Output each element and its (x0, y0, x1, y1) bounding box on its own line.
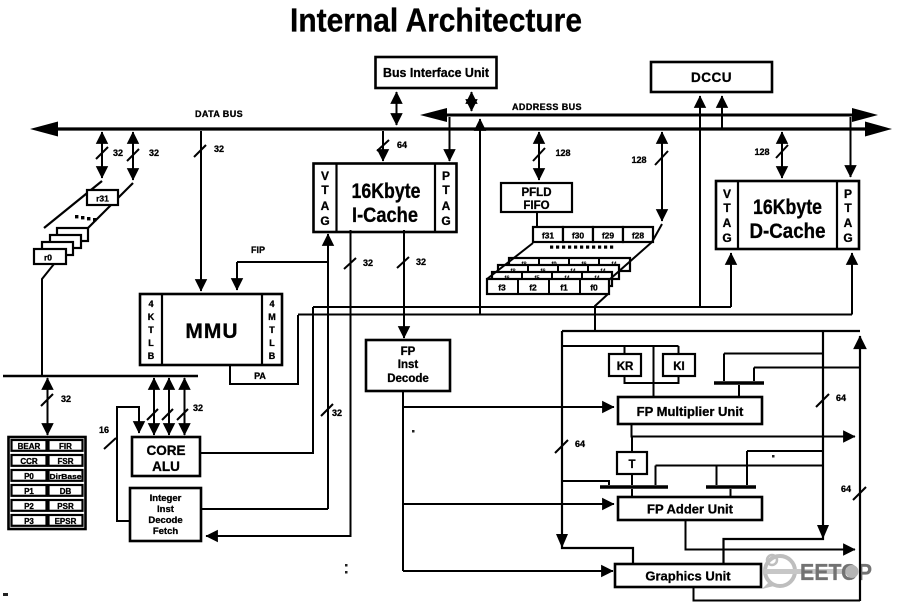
svg-text:BEAR: BEAR (18, 442, 41, 451)
svg-text:V: V (321, 169, 329, 183)
svg-text:P3: P3 (24, 517, 34, 526)
svg-text:16: 16 (99, 425, 109, 435)
svg-text:P: P (442, 169, 450, 183)
svg-text:Internal Architecture: Internal Architecture (290, 2, 582, 39)
svg-text:B: B (148, 351, 155, 361)
svg-text:PA: PA (254, 371, 266, 381)
svg-text:64: 64 (575, 439, 585, 449)
svg-text:T: T (844, 201, 852, 215)
svg-text:16Kbyte: 16Kbyte (753, 196, 822, 219)
svg-text:D-Cache: D-Cache (750, 220, 826, 243)
svg-text:Fetch: Fetch (153, 526, 179, 537)
svg-text:KI: KI (673, 361, 685, 373)
svg-text:32: 32 (416, 257, 426, 267)
svg-text:32: 32 (332, 408, 342, 418)
svg-text:Bus Interface Unit: Bus Interface Unit (383, 65, 490, 80)
svg-text:32: 32 (363, 258, 373, 268)
svg-text:f1: f1 (560, 283, 568, 293)
svg-text:FIFO: FIFO (523, 200, 549, 212)
svg-text:ADDRESS BUS: ADDRESS BUS (512, 102, 582, 112)
svg-text:FP: FP (401, 346, 416, 358)
svg-text:128: 128 (555, 148, 570, 158)
svg-text:G: G (722, 231, 731, 245)
svg-text:P: P (844, 187, 852, 201)
svg-text:B: B (269, 351, 276, 361)
svg-text:EPSR: EPSR (55, 517, 77, 526)
svg-text:CORE: CORE (146, 443, 185, 458)
svg-text:FIP: FIP (251, 245, 265, 255)
svg-text:32: 32 (214, 144, 224, 154)
svg-text:f30: f30 (572, 231, 585, 241)
svg-text:64: 64 (836, 393, 846, 403)
svg-text:FSR: FSR (58, 457, 74, 466)
svg-text:Integer: Integer (150, 493, 182, 504)
svg-text:Inst: Inst (157, 504, 175, 515)
svg-text:T: T (321, 183, 329, 197)
svg-text:P0: P0 (24, 472, 34, 481)
svg-text:K: K (148, 312, 155, 322)
svg-text:Inst: Inst (398, 359, 419, 371)
svg-text:Decode: Decode (387, 373, 429, 385)
svg-text:T: T (628, 459, 635, 471)
svg-text:DCCU: DCCU (691, 70, 732, 85)
svg-text:KR: KR (617, 361, 634, 373)
svg-text:A: A (442, 199, 451, 213)
svg-text:PFLD: PFLD (521, 187, 551, 199)
svg-text:L: L (269, 338, 275, 348)
svg-text:32: 32 (61, 394, 71, 404)
svg-text:f31: f31 (542, 231, 555, 241)
svg-text:f29: f29 (602, 231, 615, 241)
svg-text:P1: P1 (24, 487, 34, 496)
svg-text:32: 32 (113, 148, 123, 158)
svg-text:4: 4 (148, 299, 153, 309)
svg-text:EETOP: EETOP (800, 559, 872, 585)
svg-text:64: 64 (397, 140, 407, 150)
svg-text:DB: DB (60, 487, 72, 496)
svg-text:L: L (148, 338, 154, 348)
svg-text:f0: f0 (590, 283, 598, 293)
svg-text:T: T (442, 183, 450, 197)
svg-text:A: A (723, 216, 732, 230)
svg-text:M: M (268, 312, 276, 322)
svg-text:T: T (723, 201, 731, 215)
svg-text:r0: r0 (44, 253, 52, 263)
svg-text:MMU: MMU (185, 320, 238, 343)
svg-text:16Kbyte: 16Kbyte (352, 180, 421, 203)
svg-text:G: G (441, 214, 450, 228)
svg-text:G: G (320, 214, 329, 228)
svg-text:V: V (723, 187, 731, 201)
svg-text:ALU: ALU (152, 459, 180, 474)
svg-text:f2: f2 (529, 283, 537, 293)
svg-text:r31: r31 (96, 194, 109, 204)
svg-text:DATA BUS: DATA BUS (195, 109, 243, 119)
svg-text:FP Multiplier Unit: FP Multiplier Unit (637, 404, 744, 419)
svg-text:FIR: FIR (59, 442, 72, 451)
svg-text:32: 32 (149, 148, 159, 158)
svg-text:PSR: PSR (57, 502, 74, 511)
svg-text:64: 64 (841, 484, 851, 494)
svg-text:f28: f28 (632, 231, 645, 241)
svg-text:I-Cache: I-Cache (352, 204, 418, 227)
svg-text:4: 4 (269, 299, 274, 309)
svg-text:FP Adder Unit: FP Adder Unit (647, 502, 734, 517)
svg-text:Graphics Unit: Graphics Unit (645, 569, 731, 584)
svg-text:32: 32 (193, 403, 203, 413)
svg-text:f3: f3 (498, 283, 506, 293)
svg-text:CCR: CCR (20, 457, 38, 466)
svg-text:Decode: Decode (148, 515, 182, 526)
svg-text:P2: P2 (24, 502, 34, 511)
svg-text:DirBase: DirBase (50, 472, 82, 481)
svg-text:T: T (269, 325, 275, 335)
svg-text:G: G (843, 231, 852, 245)
svg-text:T: T (148, 325, 154, 335)
svg-text:A: A (844, 216, 853, 230)
svg-text:A: A (321, 199, 330, 213)
svg-text:128: 128 (631, 155, 646, 165)
svg-text:128: 128 (754, 147, 769, 157)
